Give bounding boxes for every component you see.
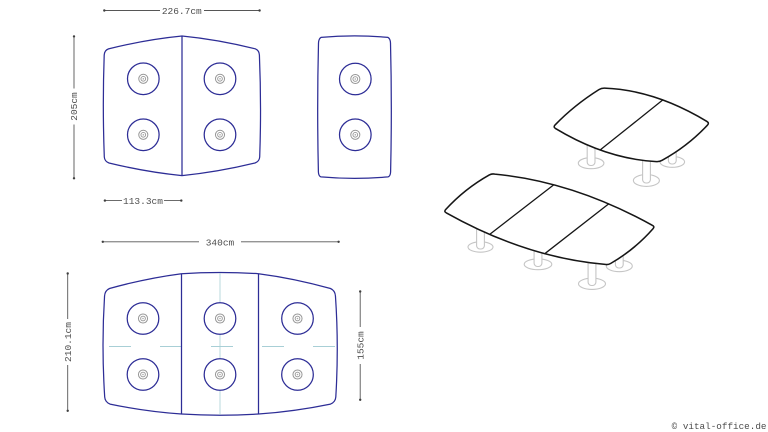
svg-text:340cm: 340cm	[206, 237, 235, 248]
svg-text:155cm: 155cm	[355, 331, 366, 360]
svg-text:226.7cm: 226.7cm	[162, 6, 202, 17]
svg-text:210.1cm: 210.1cm	[63, 322, 74, 362]
svg-text:© vital-office.de: © vital-office.de	[672, 421, 767, 432]
svg-text:205cm: 205cm	[69, 92, 80, 121]
svg-text:113.3cm: 113.3cm	[123, 196, 163, 207]
